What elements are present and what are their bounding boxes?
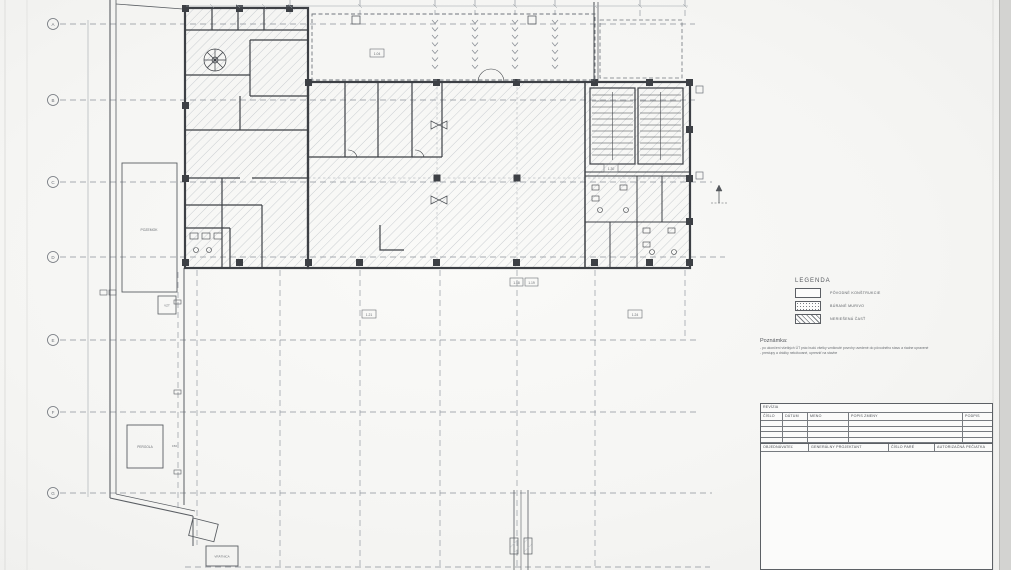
grid-bubble: C: [48, 177, 59, 188]
grid-bubble: A: [48, 19, 59, 30]
legend: LEGENDA PÔVODNÉ KONŠTRUKCIE BÚRANÉ MURIV…: [795, 278, 945, 323]
room-tag: 1.19: [528, 281, 535, 285]
title-block-header: MENO: [808, 413, 849, 421]
legend-swatch-demolished: [795, 301, 821, 311]
site-elevation-label: 150: [172, 444, 177, 448]
title-block: REVÍZIA ČÍSLO DÁTUM MENO POPIS ZMENY POD…: [760, 403, 993, 570]
slope-arrows: [432, 20, 558, 69]
grid-bubble: E: [48, 335, 59, 346]
legend-item-label: PÔVODNÉ KONŠTRUKCIE: [830, 291, 881, 295]
revision-row-cell: [849, 438, 963, 444]
room-tag: 1.21: [366, 313, 373, 317]
legend-swatch-unresolved: [795, 314, 821, 324]
axis-label: F: [52, 410, 55, 415]
legend-item: NERIEŠENÁ ČASŤ: [795, 314, 945, 323]
grid-bubble: B: [48, 95, 59, 106]
title-block-stamp-area: [761, 452, 992, 570]
title-block-footer-label: OBJEDNÁVATEĽ: [761, 444, 809, 452]
revision-row-cell: [761, 438, 783, 444]
axis-label: G: [51, 491, 55, 496]
note-line: - prestupy a drážky nekótované, upresniť…: [760, 351, 1000, 356]
grid-bubble: F: [48, 407, 59, 418]
title-block-header: PODPIS: [963, 413, 992, 421]
spiral-stair: [204, 49, 226, 71]
title-block-footer-label: AUTORIZAČNÁ PEČIATKA: [935, 444, 992, 452]
title-block-header: POPIS ZMENY: [849, 413, 963, 421]
north-arrow-icon: [711, 185, 727, 203]
legend-item-label: NERIEŠENÁ ČASŤ: [830, 317, 866, 321]
site-gatehouse-label: VRÁTNICA: [214, 555, 229, 559]
title-block-footer-label: ČÍSLO PARÉ: [889, 444, 935, 452]
room-tag: 1.24: [632, 313, 639, 317]
grid-bubble: D: [48, 252, 59, 263]
site-vzt-label: VZT: [164, 304, 170, 308]
legend-item: PÔVODNÉ KONŠTRUKCIE: [795, 288, 945, 297]
room-tag: 1.04: [374, 52, 381, 56]
site-pergola-label: PERGOLA: [137, 445, 153, 449]
drawing-sheet: A B C D E F G: [0, 0, 1011, 570]
site-labels: POZEMOK VZT PERGOLA 150 VRÁTNICA: [137, 228, 229, 559]
note-title: Poznámka:: [760, 338, 1000, 344]
legend-title: LEGENDA: [795, 278, 945, 284]
title-block-footer-label: GENERÁLNY PROJEKTANT: [809, 444, 889, 452]
title-block-revision-label: REVÍZIA: [761, 404, 992, 413]
title-block-header: ČÍSLO: [761, 413, 783, 421]
legend-swatch-original: [795, 288, 821, 298]
room-tag: 1.30: [608, 167, 615, 171]
axis-label: A: [51, 22, 54, 27]
axis-label: B: [51, 98, 54, 103]
legend-item-label: BÚRANÉ MURIVO: [830, 304, 864, 308]
site-plot-label: POZEMOK: [141, 228, 159, 232]
revision-row-cell: [808, 438, 849, 444]
axis-label: D: [51, 255, 55, 260]
grid-bubble: G: [48, 488, 59, 499]
revision-row-cell: [963, 438, 992, 444]
room-tag: 1.18: [513, 281, 520, 285]
axis-label: C: [51, 180, 55, 185]
courtyard: [312, 2, 682, 82]
legend-item: BÚRANÉ MURIVO: [795, 301, 945, 310]
title-block-header: DÁTUM: [783, 413, 808, 421]
note-block: Poznámka: - po ukončení všetkých ÚT prác…: [760, 338, 1000, 356]
axis-label: E: [51, 338, 54, 343]
revision-row-cell: [783, 438, 808, 444]
